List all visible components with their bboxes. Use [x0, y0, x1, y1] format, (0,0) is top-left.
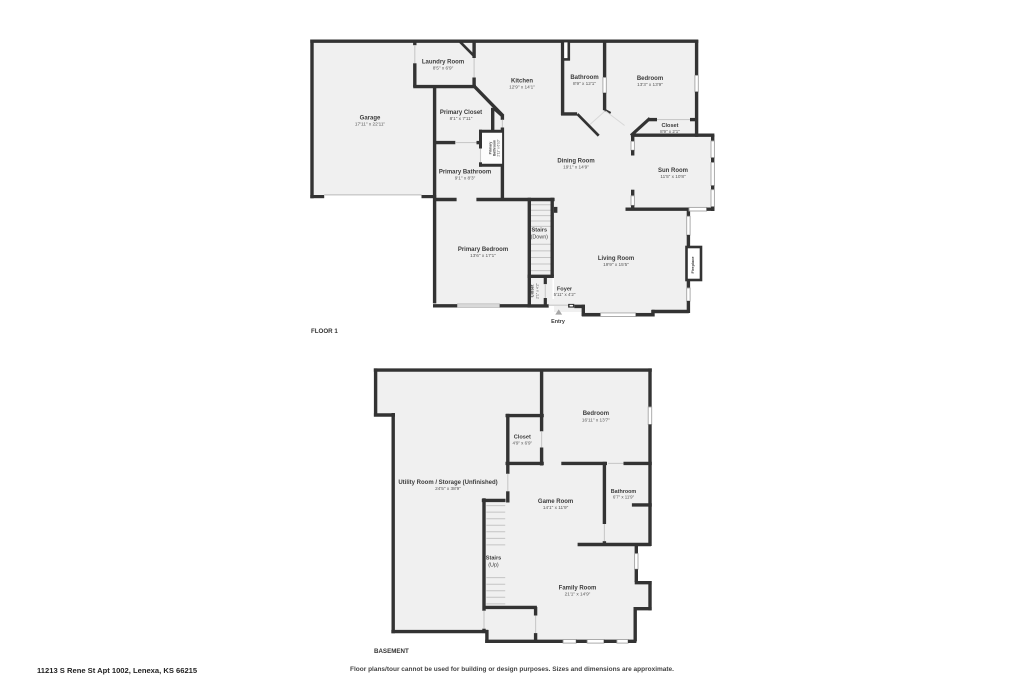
svg-text:9'1" x 8'3": 9'1" x 8'3" — [455, 176, 476, 181]
svg-text:19'9" x 15'5": 19'9" x 15'5" — [603, 262, 629, 267]
svg-text:8'5" x 6'9": 8'5" x 6'9" — [433, 66, 454, 71]
svg-text:Entry: Entry — [551, 319, 565, 325]
svg-text:6'7" x 11'9": 6'7" x 11'9" — [613, 495, 635, 500]
svg-text:8'9" x 2'1": 8'9" x 2'1" — [660, 129, 680, 134]
svg-text:Stairs: Stairs — [532, 228, 548, 234]
svg-text:Garage: Garage — [360, 116, 381, 122]
svg-text:16'11" x 13'7": 16'11" x 13'7" — [582, 417, 610, 422]
svg-text:Sun Room: Sun Room — [658, 168, 688, 174]
svg-text:Primary Bathroom: Primary Bathroom — [439, 169, 491, 175]
svg-text:12'9" x 14'1": 12'9" x 14'1" — [509, 85, 535, 90]
svg-text:8'1" x 7'11": 8'1" x 7'11" — [450, 116, 473, 121]
svg-text:Utility Room / Storage (Unfini: Utility Room / Storage (Unfinished) — [398, 480, 497, 486]
svg-text:13'3" x 13'9": 13'3" x 13'9" — [637, 82, 663, 87]
svg-text:13'6" x 17'1": 13'6" x 17'1" — [470, 253, 496, 258]
svg-text:4'9" x 6'9": 4'9" x 6'9" — [512, 440, 532, 445]
svg-text:17'11" x 22'11": 17'11" x 22'11" — [355, 122, 386, 127]
svg-text:Closet: Closet — [529, 284, 534, 297]
svg-text:Primary Closet: Primary Closet — [440, 110, 482, 116]
svg-text:11213 S Rene St Apt 1002, Lene: 11213 S Rene St Apt 1002, Lenexa, KS 662… — [37, 666, 198, 675]
svg-text:(Down): (Down) — [531, 235, 549, 241]
svg-text:2'11" x 6'10": 2'11" x 6'10" — [497, 139, 501, 156]
svg-text:Fireplace: Fireplace — [690, 256, 695, 274]
svg-text:Stairs: Stairs — [486, 556, 502, 562]
svg-text:Bedroom: Bedroom — [637, 76, 663, 82]
svg-text:Floor plans/tour cannot be use: Floor plans/tour cannot be used for buil… — [350, 666, 674, 673]
svg-text:24'5" x 38'9": 24'5" x 38'9" — [435, 486, 461, 491]
svg-text:Kitchen: Kitchen — [511, 78, 533, 84]
svg-text:Bedroom: Bedroom — [583, 411, 609, 417]
svg-text:14'1" x 11'9": 14'1" x 11'9" — [543, 505, 569, 510]
svg-text:5'11" x 4'2": 5'11" x 4'2" — [554, 292, 576, 297]
svg-text:Living Room: Living Room — [598, 256, 634, 262]
svg-text:11'5" x 10'8": 11'5" x 10'8" — [660, 174, 686, 179]
svg-text:Game Room: Game Room — [538, 499, 573, 505]
svg-text:Bathroom: Bathroom — [570, 75, 598, 81]
svg-text:Primary Bedroom: Primary Bedroom — [458, 247, 508, 253]
svg-text:Family Room: Family Room — [559, 585, 597, 591]
svg-text:BASEMENT: BASEMENT — [374, 648, 409, 655]
svg-text:Laundry Room: Laundry Room — [422, 59, 464, 65]
svg-text:19'1" x 14'9": 19'1" x 14'9" — [563, 165, 589, 170]
svg-text:8'9" x 12'1": 8'9" x 12'1" — [573, 81, 596, 86]
svg-text:(Up): (Up) — [488, 563, 499, 569]
svg-text:FLOOR 1: FLOOR 1 — [311, 328, 338, 335]
svg-text:21'1" x 14'9": 21'1" x 14'9" — [565, 592, 591, 597]
svg-text:2'1" x 4'2": 2'1" x 4'2" — [536, 282, 540, 298]
svg-text:Dining Room: Dining Room — [557, 158, 594, 164]
